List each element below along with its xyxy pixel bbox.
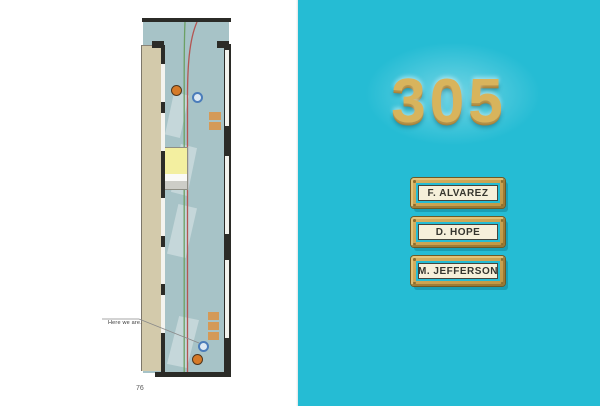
door-opening <box>161 196 165 238</box>
path-line-red <box>188 22 198 372</box>
nameplate-label: D. HOPE <box>418 224 498 240</box>
orange-dot-marker <box>192 354 203 365</box>
window <box>225 50 229 126</box>
left-wall <box>161 45 165 372</box>
nameplate: F. ALVAREZ <box>411 178 505 208</box>
blue-dot-marker <box>192 92 203 103</box>
door-opening <box>161 62 165 104</box>
screw-icon <box>413 282 416 285</box>
page-number: 76 <box>136 385 144 392</box>
screw-icon <box>501 282 504 285</box>
nameplate-label: M. JEFFERSON <box>418 263 498 279</box>
bottom-wall <box>155 372 226 377</box>
top-wall <box>142 18 231 22</box>
wall-bracket-right <box>217 41 229 48</box>
screw-icon <box>501 180 504 183</box>
window <box>225 260 229 338</box>
screw-icon <box>501 219 504 222</box>
room-number: 305 <box>298 56 600 148</box>
elevator-light <box>164 148 187 174</box>
nameplate-label: F. ALVAREZ <box>418 185 498 201</box>
nameplate: D. HOPE <box>411 217 505 247</box>
bench <box>208 332 219 340</box>
window-column <box>224 44 231 377</box>
screw-icon <box>501 204 504 207</box>
left-page: Here we are. 76 <box>0 0 298 406</box>
orange-dot-marker <box>171 85 182 96</box>
door-opening <box>161 245 165 286</box>
door-opening <box>161 111 165 153</box>
screw-icon <box>413 204 416 207</box>
bench <box>209 112 221 120</box>
bench <box>208 312 219 320</box>
screw-icon <box>413 243 416 246</box>
elevator-room <box>163 147 188 190</box>
elevator-sill <box>164 174 187 181</box>
wall-bracket-left <box>152 41 164 48</box>
blue-dot-marker-here <box>198 341 209 352</box>
floor-plan <box>141 18 233 378</box>
elevator-doors <box>164 181 187 189</box>
nameplate: M. JEFFERSON <box>411 256 505 286</box>
window <box>225 156 229 234</box>
bench <box>209 122 221 130</box>
door-opening <box>161 293 165 335</box>
path-line-green <box>184 22 185 372</box>
bench <box>208 322 219 330</box>
screw-icon <box>501 243 504 246</box>
here-we-are-label: Here we are. <box>108 320 154 327</box>
right-page: 305 F. ALVAREZ D. HOPE M. JEFFERSON <box>298 0 600 406</box>
screw-icon <box>501 258 504 261</box>
